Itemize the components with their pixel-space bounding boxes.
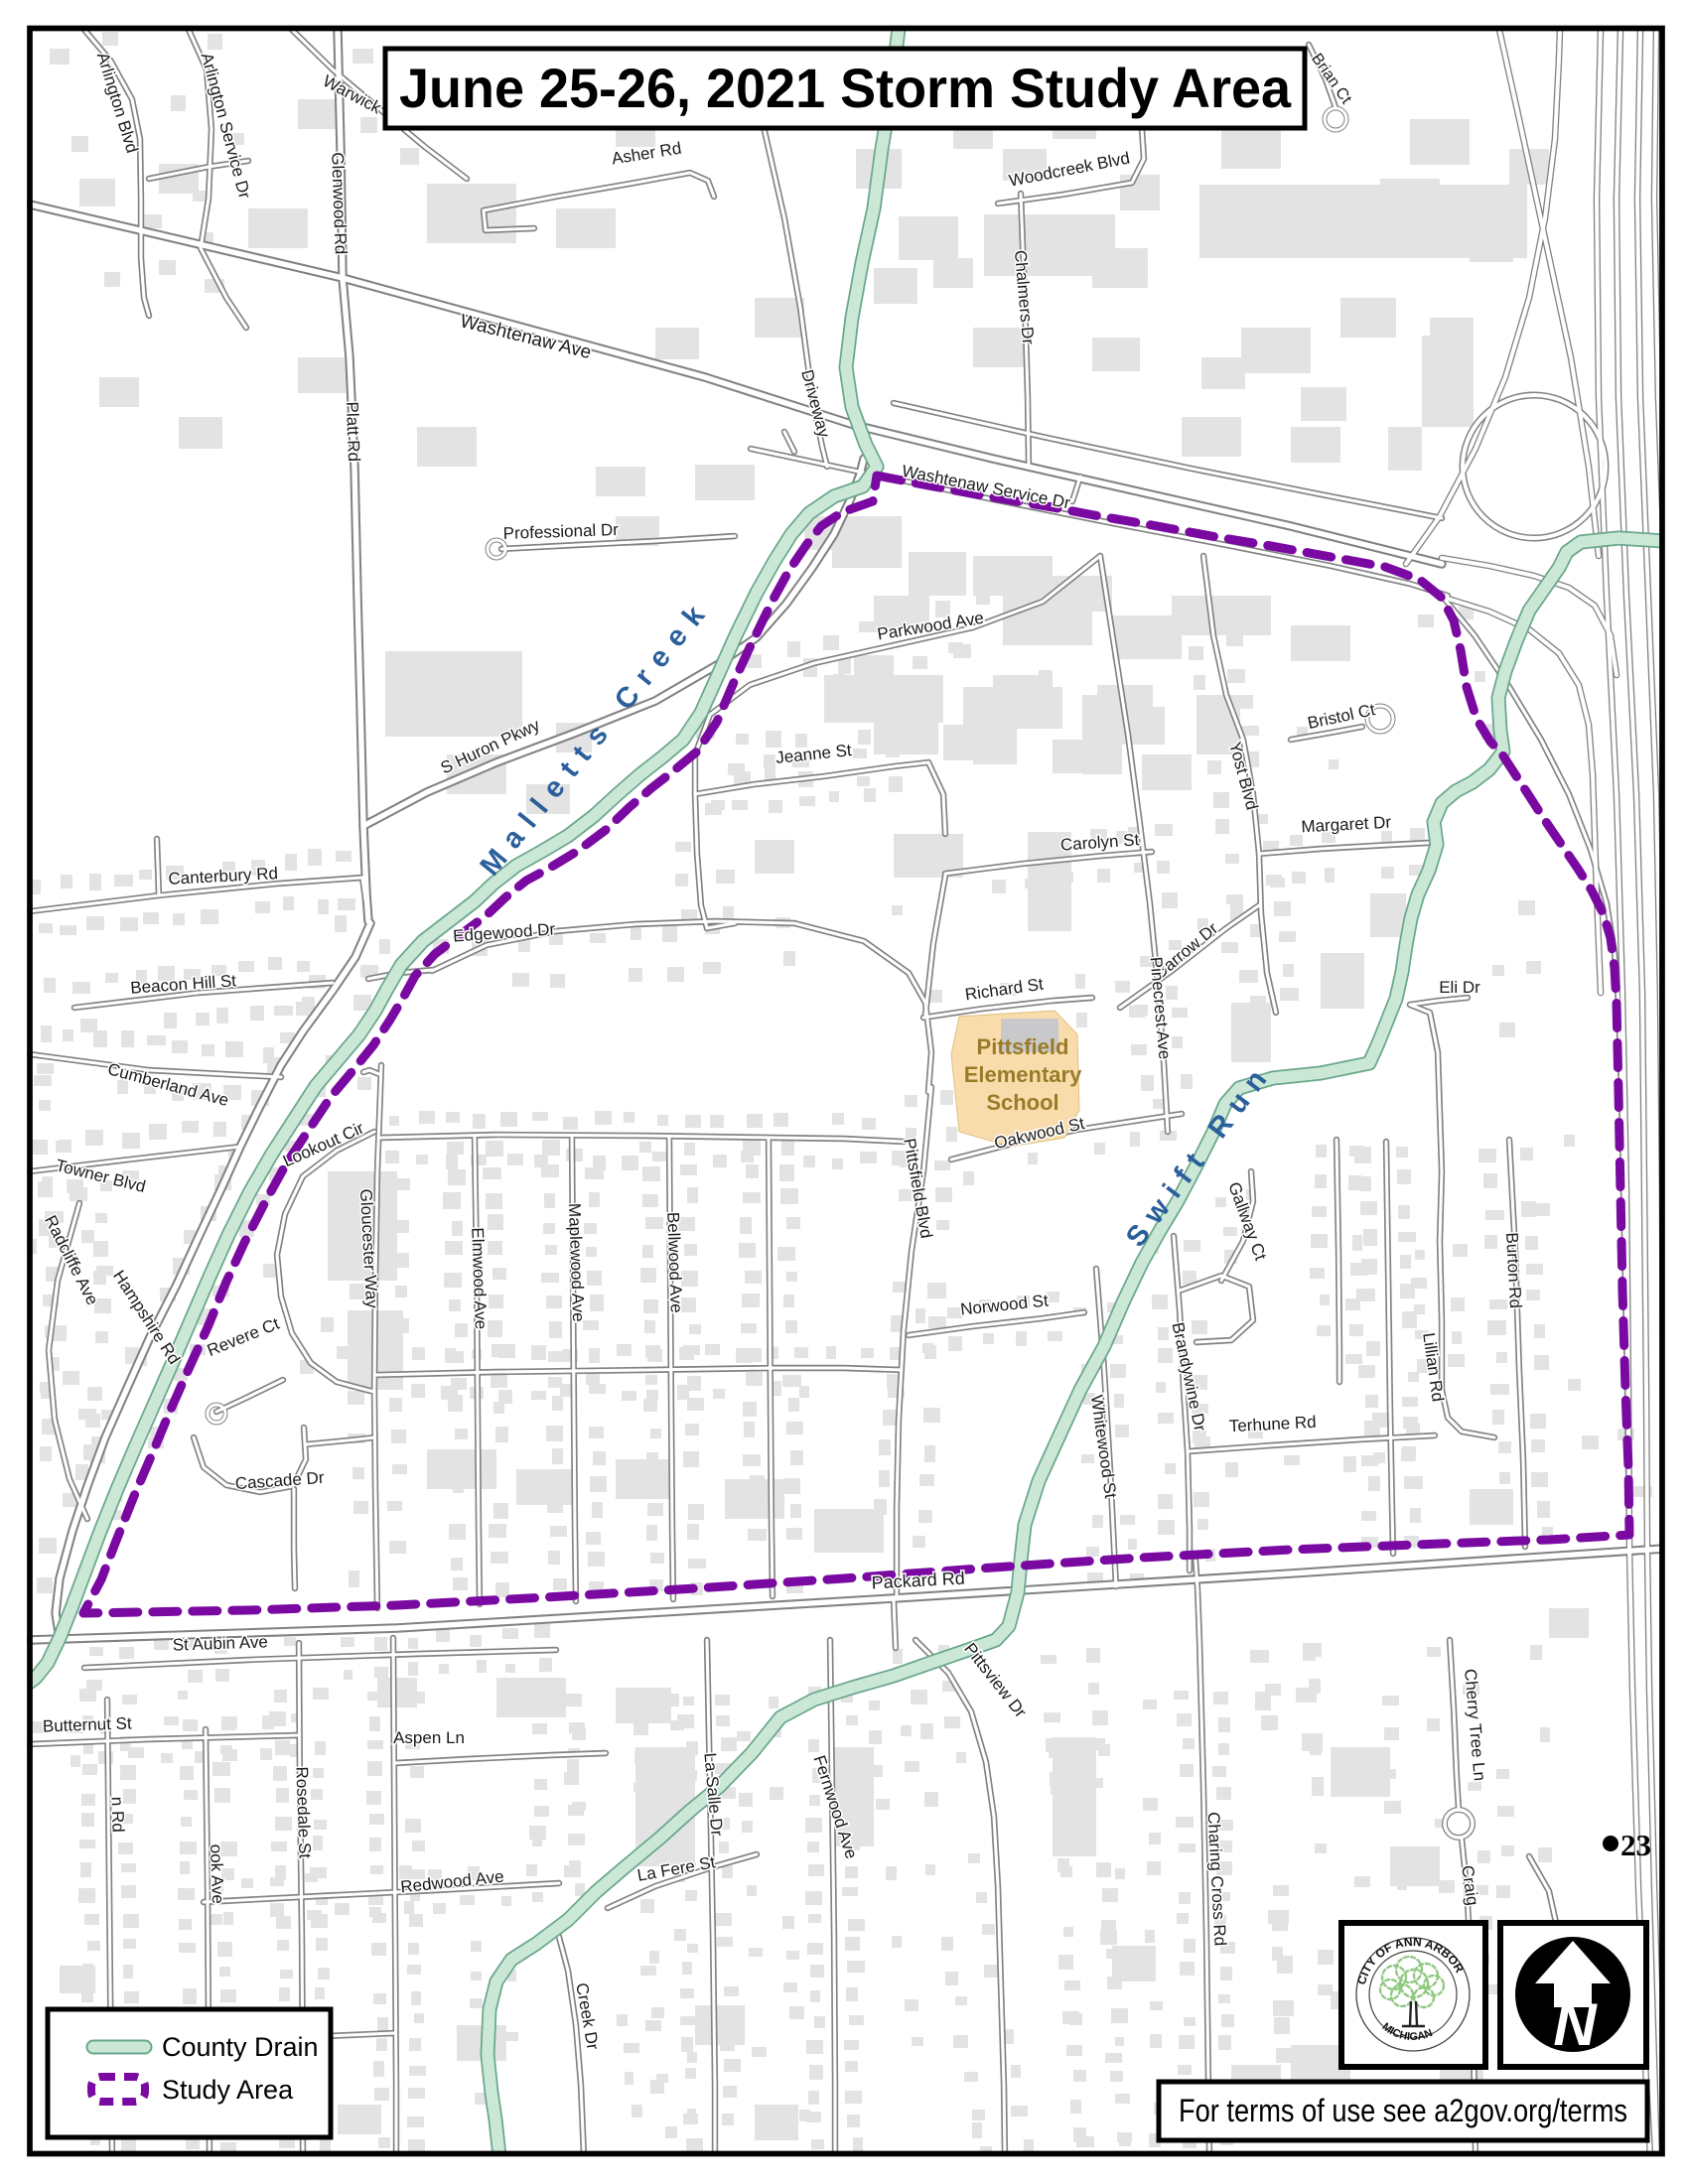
svg-text:Professional Dr: Professional Dr	[502, 520, 619, 543]
svg-text:Eli Dr: Eli Dr	[1439, 978, 1480, 997]
svg-text:St Aubin Ave: St Aubin Ave	[172, 1632, 268, 1654]
svg-text:County Drain: County Drain	[162, 2032, 319, 2062]
svg-text:n Rd: n Rd	[107, 1797, 127, 1834]
svg-text:Glenwood Rd: Glenwood Rd	[328, 152, 351, 255]
svg-text:June 25-26, 2021 Storm Study A: June 25-26, 2021 Storm Study Area	[399, 57, 1292, 119]
svg-text:Bellwood Ave: Bellwood Ave	[663, 1212, 686, 1313]
svg-text:ook Ave: ook Ave	[207, 1843, 227, 1904]
svg-text:For terms of use see a2gov.org: For terms of use see a2gov.org/terms	[1179, 2093, 1627, 2128]
svg-text:Burton Rd: Burton Rd	[1502, 1232, 1525, 1308]
svg-text:Pittsfield: Pittsfield	[977, 1034, 1069, 1059]
svg-text:Platt Rd: Platt Rd	[343, 401, 363, 462]
svg-text:23: 23	[1620, 1828, 1651, 1862]
svg-text:Elementary: Elementary	[964, 1062, 1082, 1087]
svg-text:School: School	[986, 1090, 1058, 1115]
svg-text:Butternut St: Butternut St	[43, 1713, 133, 1735]
svg-text:Elmwood Ave: Elmwood Ave	[468, 1227, 491, 1329]
svg-text:N: N	[1553, 1991, 1598, 2058]
svg-text:Aspen Ln: Aspen Ln	[393, 1728, 465, 1747]
svg-text:Study Area: Study Area	[162, 2075, 294, 2105]
svg-text:Rosedale St: Rosedale St	[292, 1766, 314, 1858]
